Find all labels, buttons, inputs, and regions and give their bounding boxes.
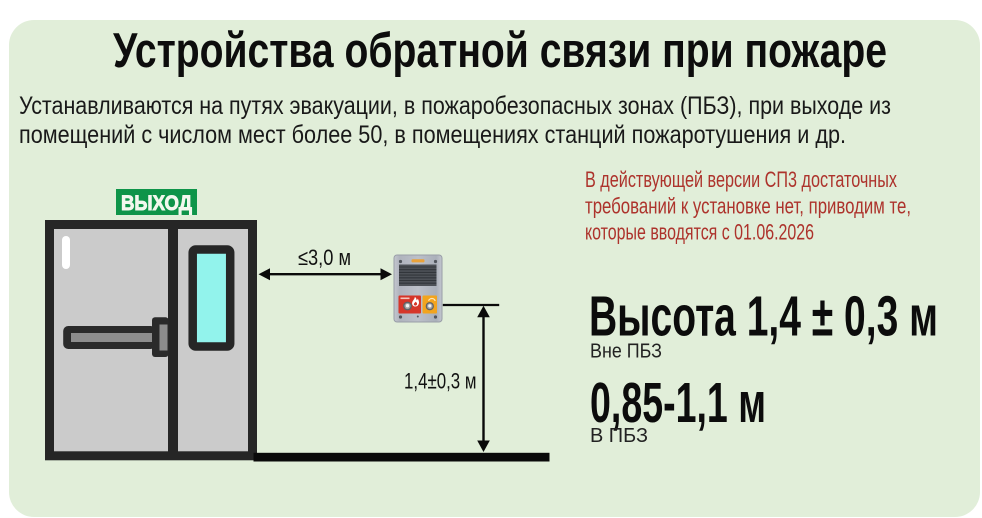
svg-text:Устанавливаются на путях эваку: Устанавливаются на путях эвакуации, в по… (19, 92, 891, 120)
svg-text:В действующей версии СП3 доста: В действующей версии СП3 достаточных (585, 167, 897, 192)
svg-text:В ПБЗ: В ПБЗ (590, 425, 648, 447)
svg-text:помещений с числом мест более: помещений с числом мест более 50, в поме… (19, 121, 846, 149)
svg-text:требований к установке нет, пр: требований к установке нет, приводим те, (585, 194, 911, 219)
svg-text:ВЫХОД: ВЫХОД (121, 192, 192, 215)
svg-text:Устройства обратной связи при: Устройства обратной связи при пожаре (113, 24, 887, 78)
svg-text:≤3,0 м: ≤3,0 м (298, 245, 351, 270)
svg-text:1,4±0,3 м: 1,4±0,3 м (404, 369, 477, 394)
svg-text:Высота 1,4 ± 0,3 м: Высота 1,4 ± 0,3 м (589, 285, 938, 349)
svg-text:Вне ПБЗ: Вне ПБЗ (590, 341, 662, 363)
svg-text:которые вводятся с 01.06.2026: которые вводятся с 01.06.2026 (585, 220, 814, 245)
